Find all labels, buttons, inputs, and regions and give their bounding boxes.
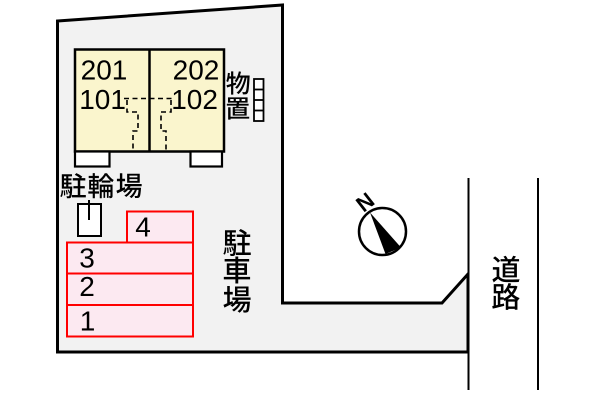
- svg-text:201: 201: [81, 55, 128, 86]
- svg-text:4: 4: [135, 212, 151, 243]
- svg-text:202: 202: [173, 55, 220, 86]
- svg-text:3: 3: [79, 243, 95, 274]
- svg-text:102: 102: [171, 84, 218, 115]
- svg-text:2: 2: [79, 271, 95, 302]
- svg-text:1: 1: [80, 306, 96, 337]
- svg-text:101: 101: [79, 84, 126, 115]
